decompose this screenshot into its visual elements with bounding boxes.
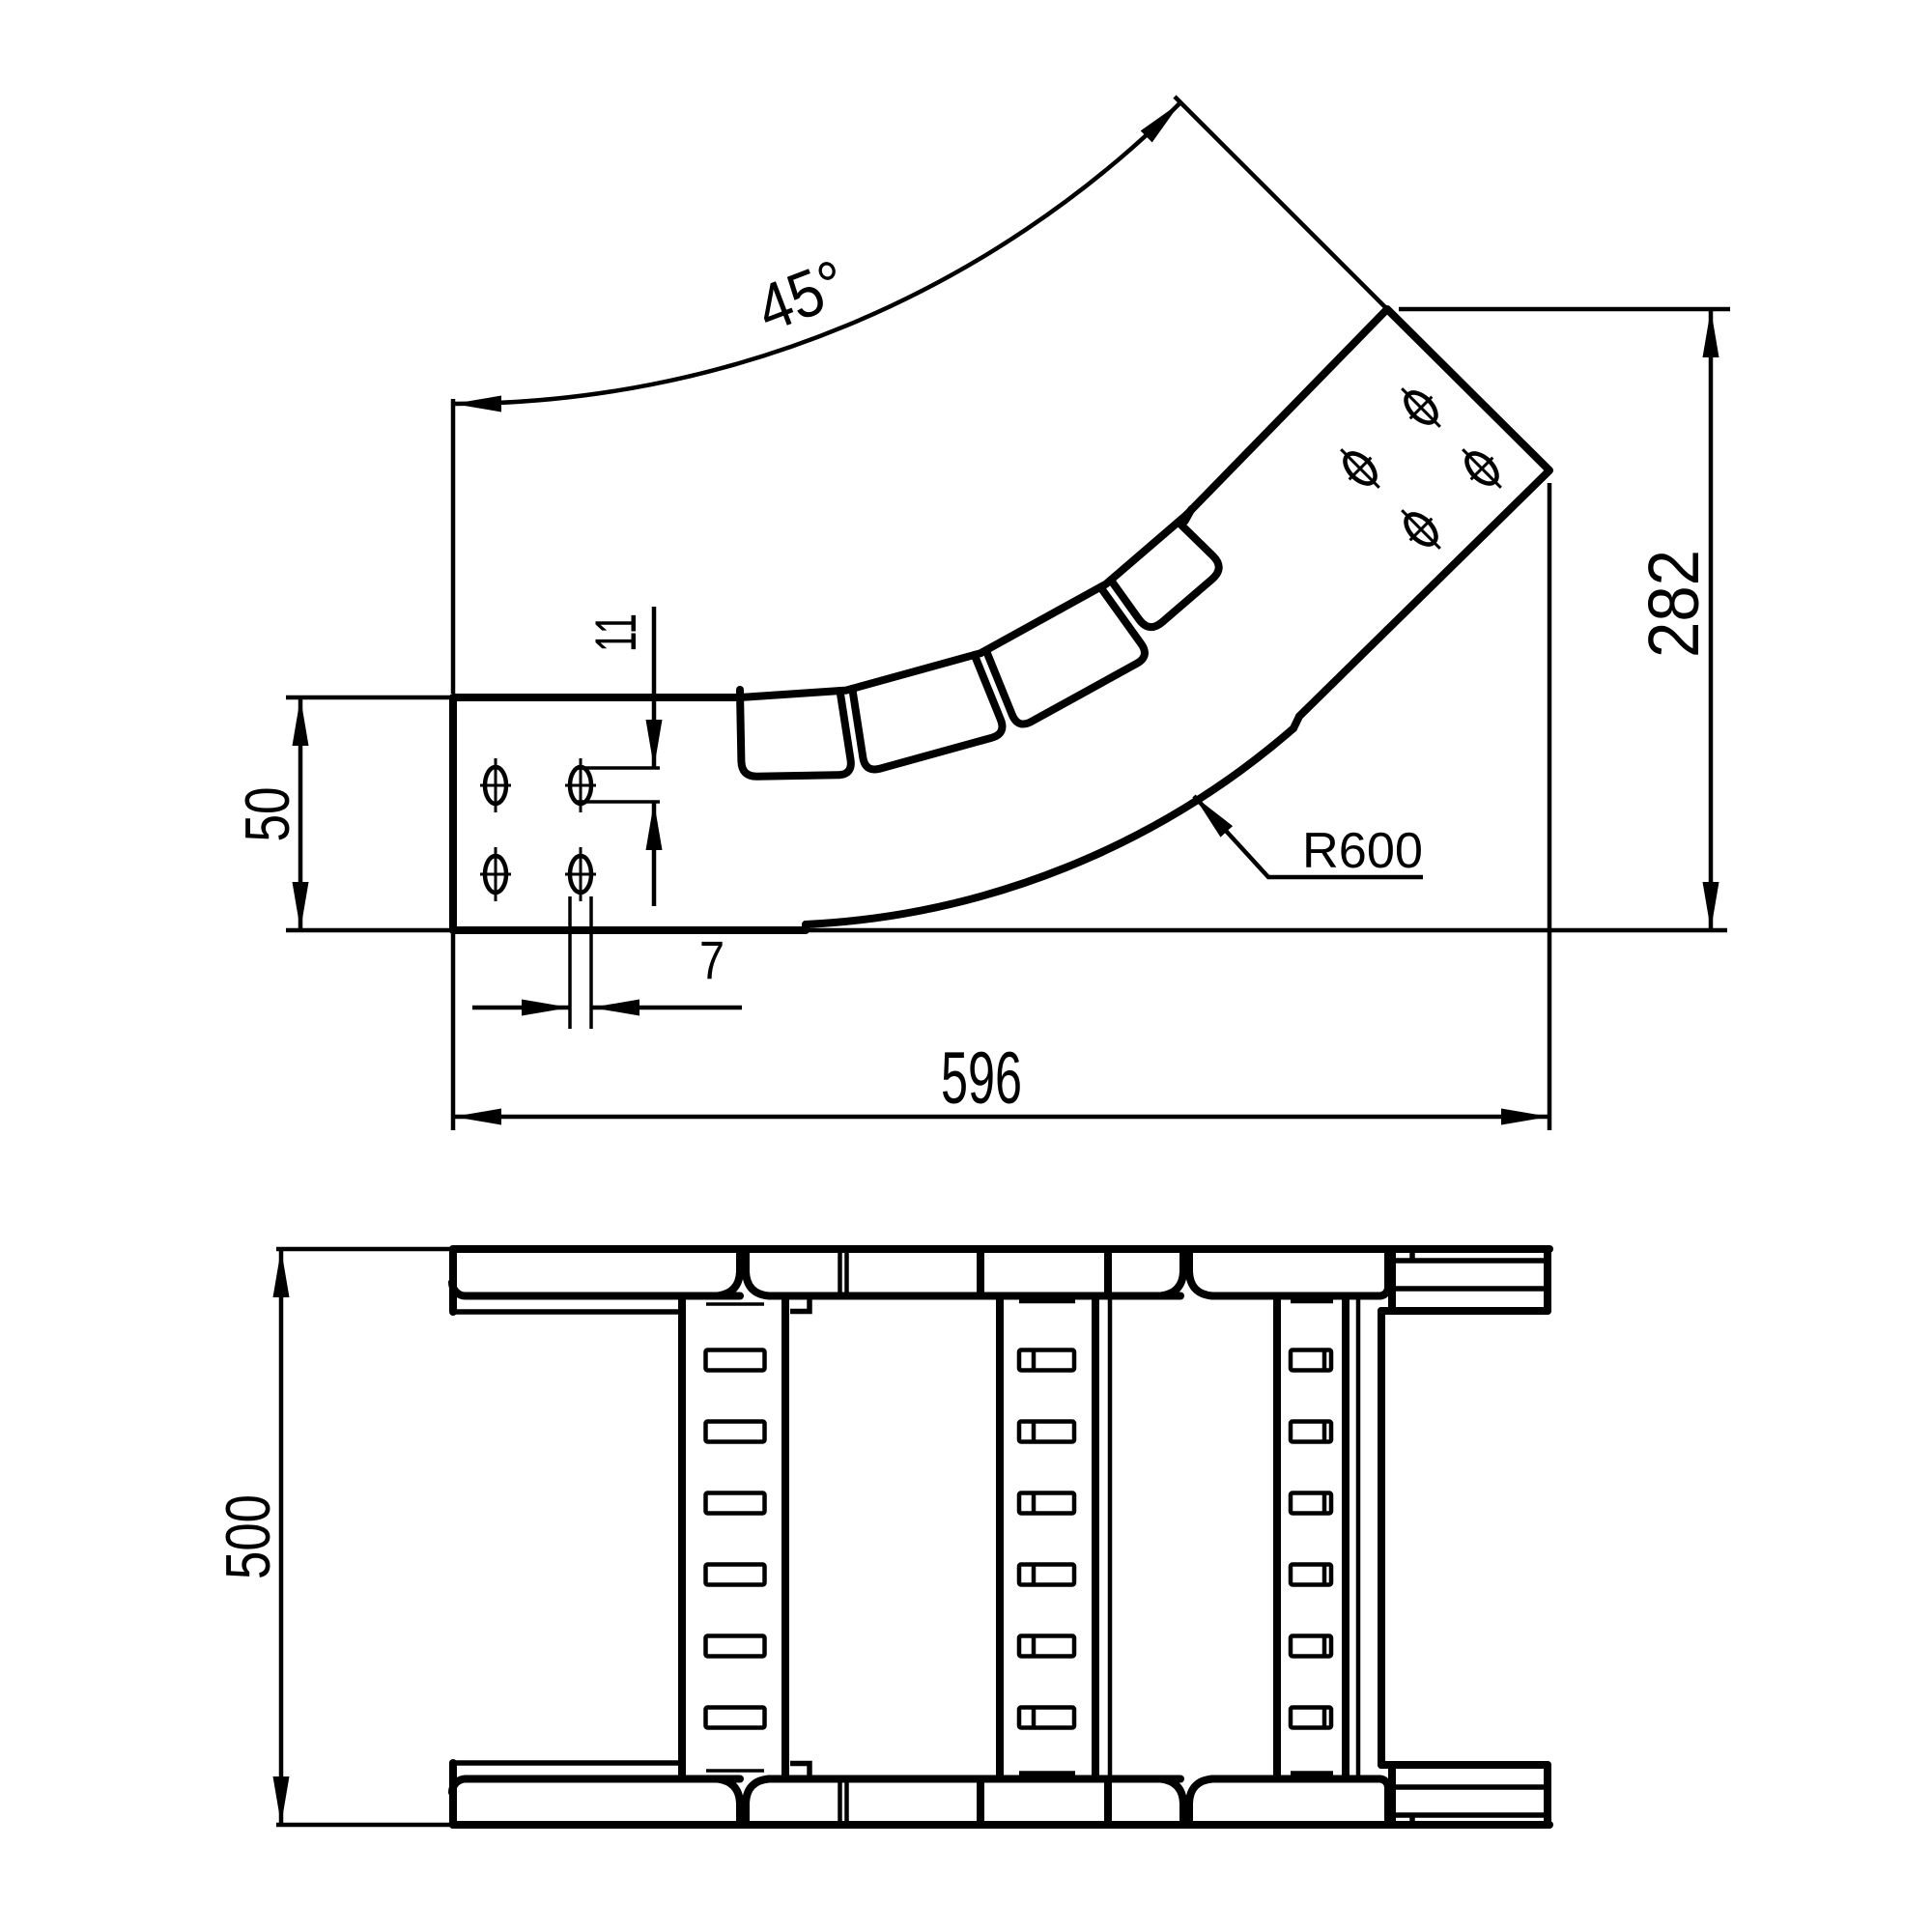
svg-text:R600: R600 bbox=[1302, 823, 1423, 879]
svg-text:11: 11 bbox=[583, 613, 648, 652]
svg-text:596: 596 bbox=[941, 1037, 1022, 1120]
svg-text:282: 282 bbox=[1634, 550, 1714, 658]
svg-text:7: 7 bbox=[699, 929, 724, 990]
svg-text:50: 50 bbox=[232, 787, 302, 842]
svg-text:500: 500 bbox=[213, 1494, 283, 1579]
